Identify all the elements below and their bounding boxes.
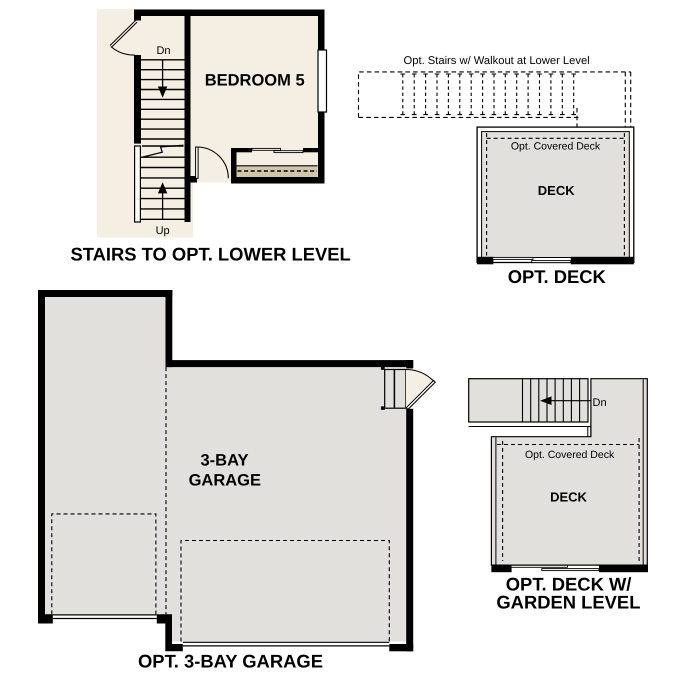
svg-text:Opt. Stairs w/ Walkout at Lowe: Opt. Stairs w/ Walkout at Lower Level xyxy=(404,55,590,67)
svg-text:STAIRS TO OPT. LOWER LEVEL: STAIRS TO OPT. LOWER LEVEL xyxy=(70,243,350,264)
svg-text:GARAGE: GARAGE xyxy=(189,472,261,490)
svg-text:OPT. 3-BAY GARAGE: OPT. 3-BAY GARAGE xyxy=(138,651,323,672)
svg-text:DECK: DECK xyxy=(550,490,587,505)
svg-text:Opt. Covered Deck: Opt. Covered Deck xyxy=(511,141,601,153)
svg-text:OPT. DECK: OPT. DECK xyxy=(508,266,607,287)
svg-text:BEDROOM 5: BEDROOM 5 xyxy=(205,71,305,89)
svg-text:Up: Up xyxy=(156,225,170,237)
svg-text:Opt. Covered Deck: Opt. Covered Deck xyxy=(525,449,615,461)
svg-text:Dn: Dn xyxy=(156,45,170,57)
svg-text:Dn: Dn xyxy=(593,397,607,409)
svg-text:3-BAY: 3-BAY xyxy=(201,452,249,470)
svg-text:DECK: DECK xyxy=(538,183,575,198)
svg-text:GARDEN LEVEL: GARDEN LEVEL xyxy=(496,591,640,612)
